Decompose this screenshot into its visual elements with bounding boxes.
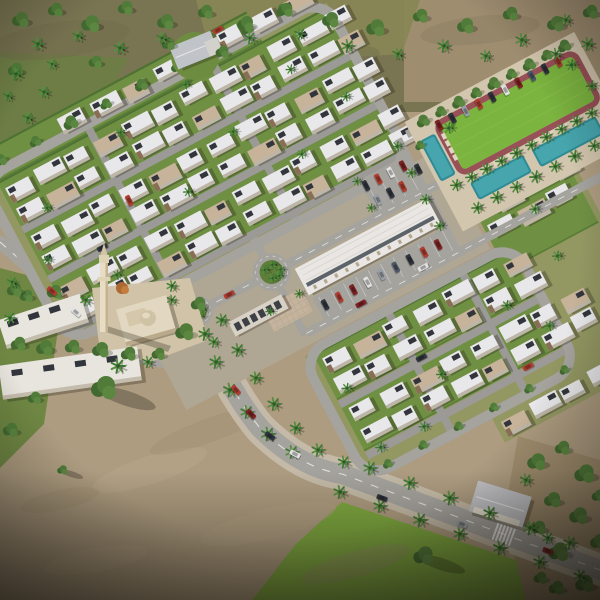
- aerial-render: Aerial 3D render of a gated desert villa…: [0, 0, 600, 600]
- vignette: [0, 0, 600, 600]
- scene-svg: [0, 0, 600, 600]
